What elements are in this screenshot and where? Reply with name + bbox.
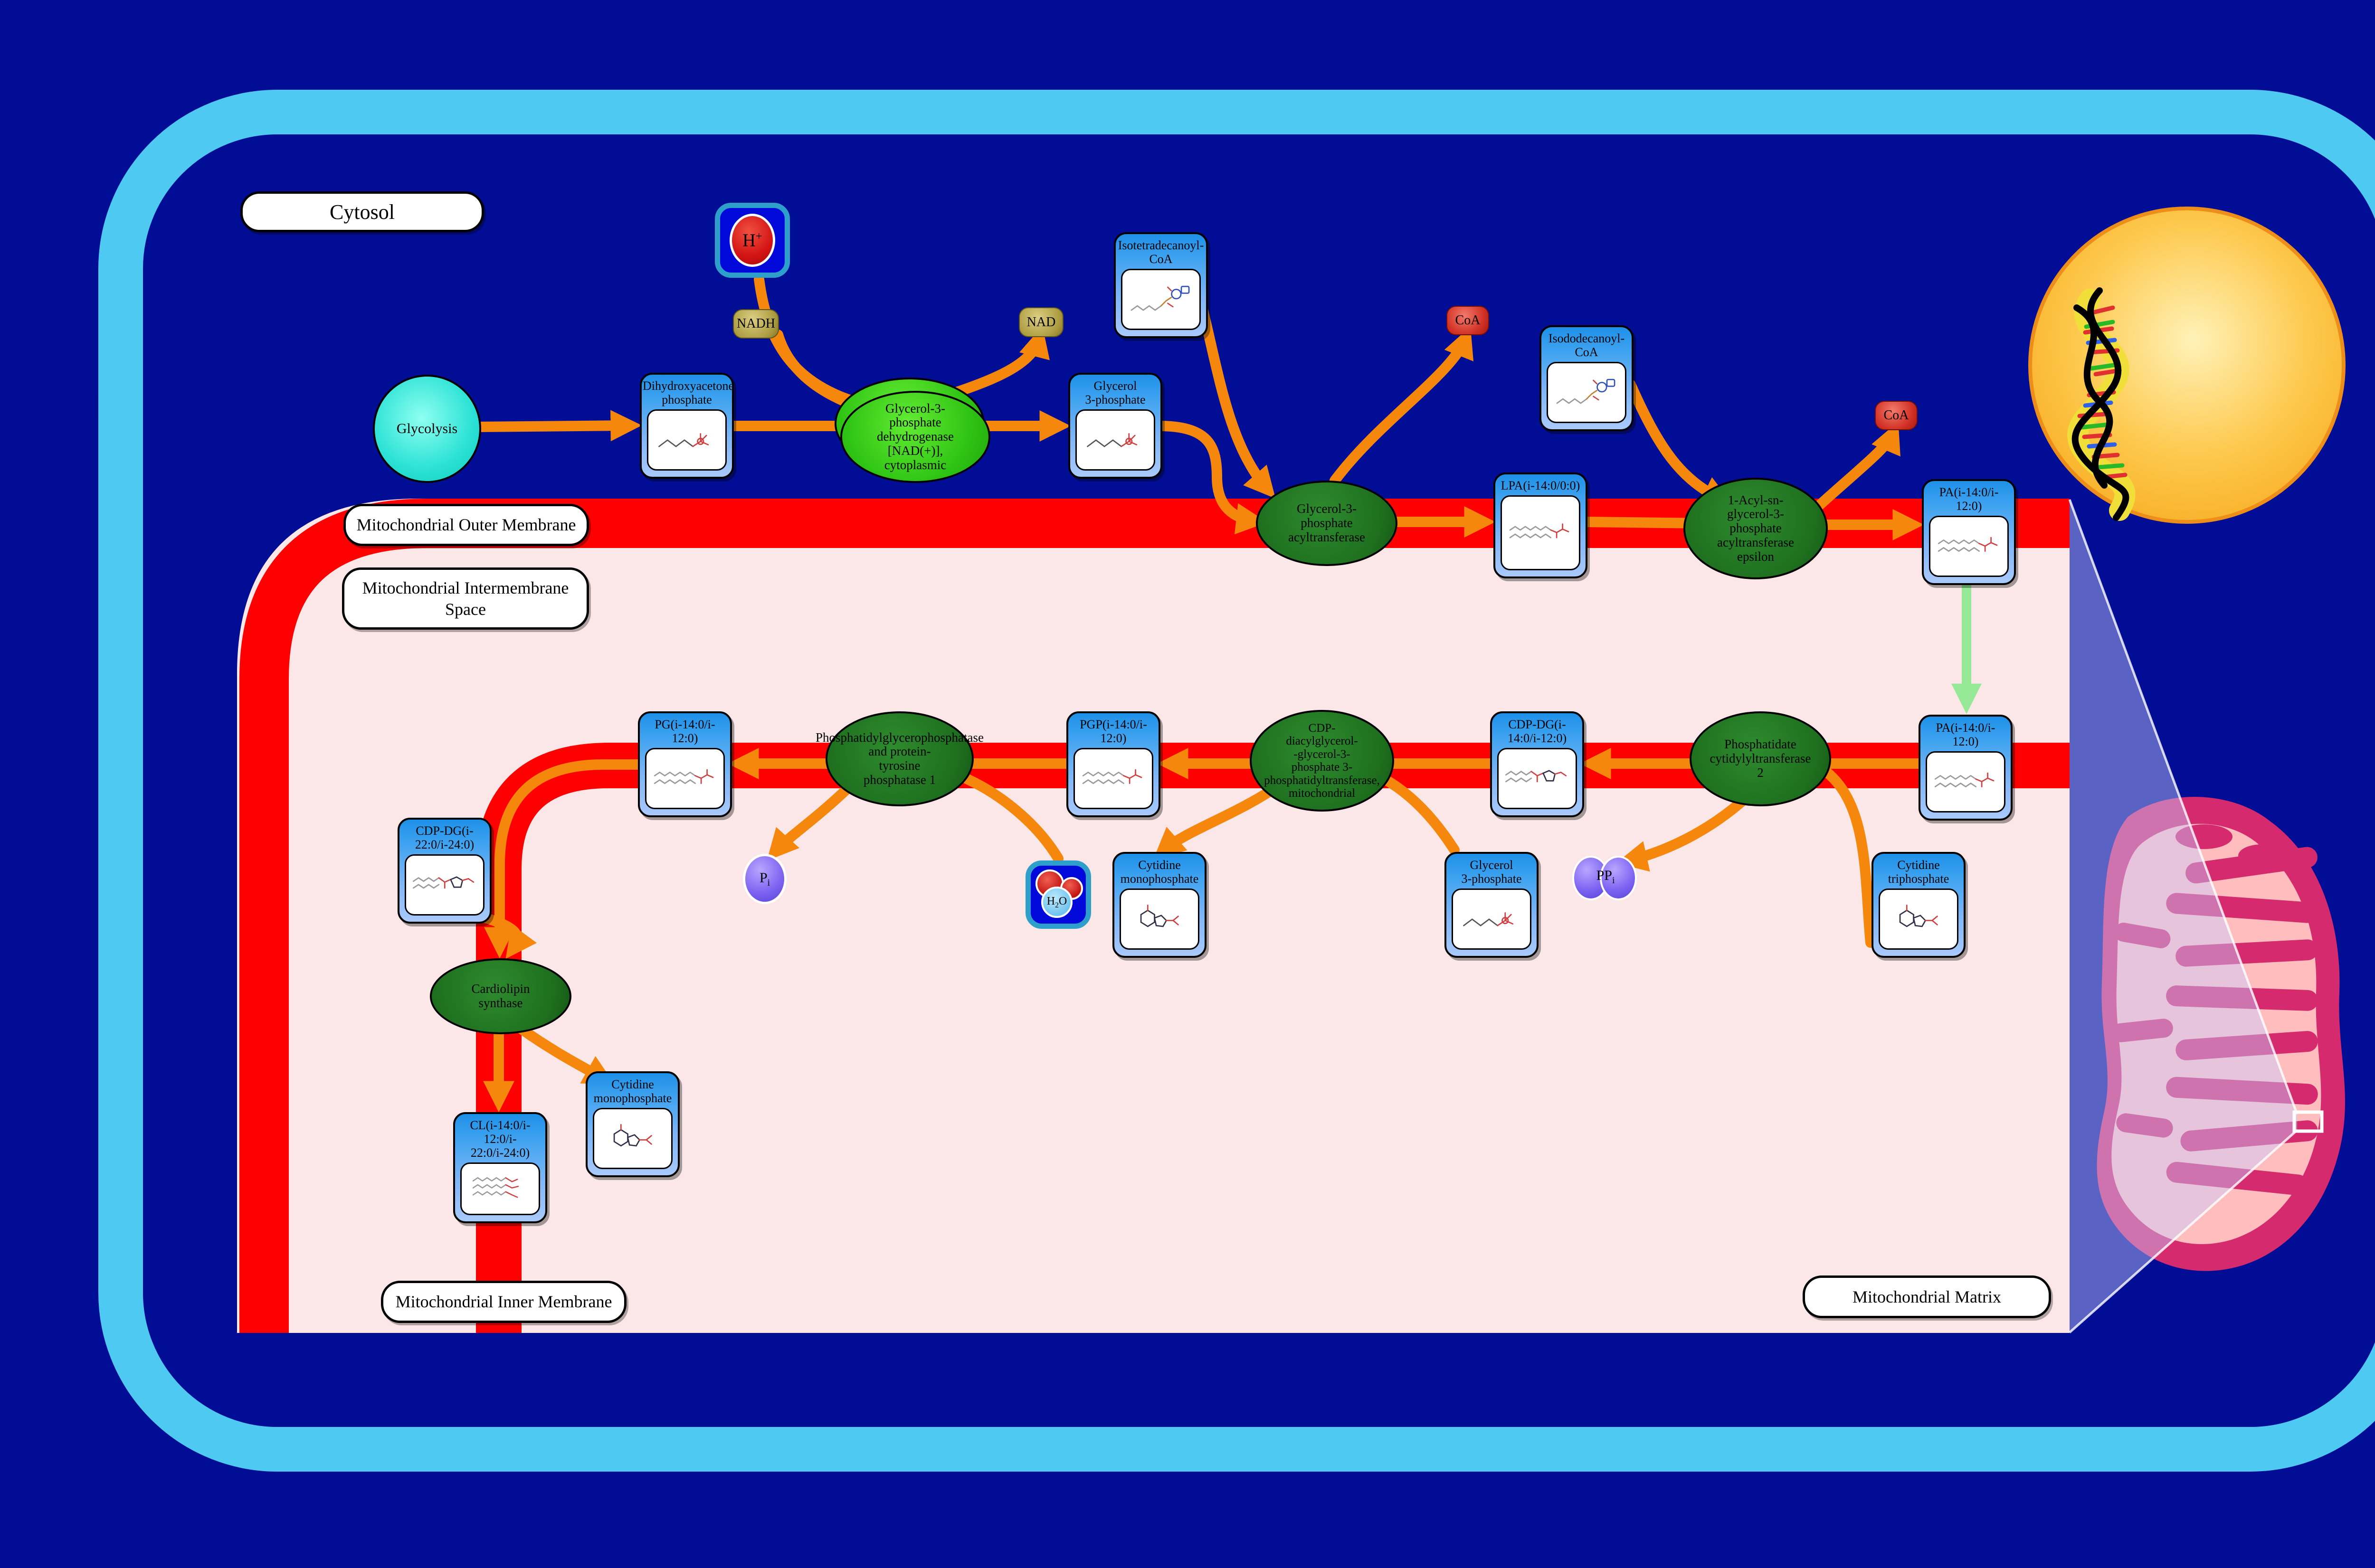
metabolite-title: PGP(i-14:0/i- 12:0) — [1068, 713, 1159, 746]
label-matrix: Mitochondrial Matrix — [1803, 1275, 2051, 1318]
enzyme-pgs1[interactable]: CDP- diacylglycerol- -glycerol-3- phosph… — [1250, 710, 1394, 812]
structure-drawing — [405, 854, 484, 916]
metabolite-title: PG(i-14:0/i- 12:0) — [640, 713, 730, 746]
metabolite-node-ctp[interactable]: Cytidine triphosphate — [1871, 852, 1966, 958]
metabolite-node-cmp-matrix[interactable]: Cytidine monophosphate — [1112, 852, 1206, 958]
metabolite-title: CDP-DG(i- 14:0/i-12:0) — [1492, 713, 1582, 746]
cofactor-h-plus[interactable]: H+ — [715, 203, 790, 278]
metabolite-node-cardiolipin[interactable]: CL(i-14:0/i- 12:0/i- 22:0/i-24:0) — [453, 1112, 547, 1223]
enzyme-ptpmt1[interactable]: Phosphatidylglycerophosphatase and prote… — [826, 711, 974, 806]
pathway-diagram: Cytosol Mitochondrial Outer Membrane Mit… — [0, 0, 2375, 1568]
structure-drawing — [1073, 748, 1153, 809]
pathway-node-glycolysis[interactable]: Glycolysis — [373, 375, 481, 483]
metabolite-title: PA(i-14:0/i- 12:0) — [1924, 481, 2014, 514]
label-outer-membrane: Mitochondrial Outer Membrane — [343, 504, 589, 546]
metabolite-title: Isotetradecanoyl- CoA — [1116, 234, 1206, 267]
structure-drawing — [1879, 888, 1958, 950]
metabolite-node-lpa[interactable]: LPA(i-14:0/0:0) — [1493, 472, 1587, 578]
metabolite-title: Cytidine triphosphate — [1873, 854, 1964, 887]
enzyme-label: Glycerol-3- phosphate acyltransferase — [1288, 502, 1365, 544]
structure-drawing — [1452, 888, 1531, 950]
enzyme-label: Phosphatidylglycerophosphatase and prote… — [816, 731, 984, 787]
enzyme-label: Glycerol-3- phosphate dehydrogenase [NAD… — [877, 402, 954, 472]
metabolite-node-g3p-matrix[interactable]: Glycerol 3-phosphate — [1444, 852, 1539, 958]
metabolite-title: CDP-DG(i- 22:0/i-24:0) — [399, 820, 490, 852]
cofactor-coa-top[interactable]: CoA — [1446, 306, 1489, 335]
metabolite-node-g3p-cytosol[interactable]: Glycerol 3-phosphate — [1068, 373, 1162, 479]
cofactor-label: NADH — [737, 316, 775, 331]
label-text: Mitochondrial Intermembrane Space — [362, 577, 569, 620]
metabolite-title: Cytidine monophosphate — [1114, 854, 1205, 887]
cofactor-label: CoA — [1455, 313, 1481, 328]
cofactor-nad[interactable]: NAD — [1019, 307, 1064, 337]
structure-drawing — [645, 748, 725, 809]
cofactor-nadh[interactable]: NADH — [733, 309, 779, 339]
label-text: Mitochondrial Matrix — [1852, 1286, 2001, 1308]
structure-drawing — [593, 1108, 673, 1169]
cofactor-h2o[interactable]: H2O — [1026, 860, 1091, 929]
metabolite-node-cdp-dg-22-24[interactable]: CDP-DG(i- 22:0/i-24:0) — [398, 818, 492, 924]
node-label: Glycolysis — [397, 421, 457, 437]
structure-drawing — [647, 409, 727, 471]
cofactor-label: CoA — [1884, 408, 1909, 423]
cofactor-coa-right[interactable]: CoA — [1875, 401, 1918, 430]
metabolite-node-isotetradecanoyl-coa[interactable]: Isotetradecanoyl- CoA — [1114, 232, 1208, 338]
water-molecule: H2O — [1041, 887, 1073, 918]
structure-drawing — [1120, 888, 1199, 950]
enzyme-agpat-epsilon[interactable]: 1-Acyl-sn- glycerol-3- phosphate acyltra… — [1683, 478, 1828, 579]
cofactor-ppi[interactable]: PPi — [1572, 855, 1639, 898]
metabolite-node-cdp-dg-14-12[interactable]: CDP-DG(i- 14:0/i-12:0) — [1490, 711, 1584, 817]
enzyme-label: 1-Acyl-sn- glycerol-3- phosphate acyltra… — [1717, 493, 1794, 564]
metabolite-title: Isododecanoyl- CoA — [1541, 327, 1632, 360]
metabolite-node-dhap[interactable]: Dihydroxyacetone phosphate — [640, 373, 734, 479]
enzyme-pcyt2[interactable]: Phosphatidate cytidylyltransferase 2 — [1690, 711, 1831, 806]
label-inner-membrane: Mitochondrial Inner Membrane — [381, 1281, 627, 1323]
cofactor-pi[interactable]: Pi — [743, 854, 787, 904]
metabolite-title: Glycerol 3-phosphate — [1070, 375, 1160, 407]
metabolite-node-pa-inner[interactable]: PA(i-14:0/i- 12:0) — [1919, 715, 2013, 821]
metabolite-title: Cytidine monophosphate — [588, 1073, 678, 1106]
metabolite-title: PA(i-14:0/i- 12:0) — [1920, 717, 2011, 749]
nucleus-icon — [2030, 208, 2344, 522]
metabolite-node-isododecanoyl-coa[interactable]: Isododecanoyl- CoA — [1539, 325, 1634, 431]
structure-drawing — [460, 1162, 540, 1215]
structure-drawing — [1926, 751, 2005, 812]
structure-drawing — [1497, 748, 1577, 809]
label-text: Cytosol — [330, 199, 395, 225]
structure-drawing — [1547, 362, 1626, 423]
structure-drawing — [1121, 269, 1201, 330]
metabolite-node-pa-outer[interactable]: PA(i-14:0/i- 12:0) — [1922, 479, 2016, 585]
label-text: Mitochondrial Inner Membrane — [396, 1291, 612, 1313]
structure-drawing — [1501, 495, 1580, 570]
enzyme-label: Phosphatidate cytidylyltransferase 2 — [1710, 737, 1811, 780]
h-plus-ellipse: H+ — [730, 214, 775, 267]
cofactor-label: NAD — [1027, 315, 1056, 330]
structure-drawing — [1075, 409, 1155, 471]
enzyme-label: Cardiolipin synthase — [472, 982, 530, 1010]
label-intermembrane-space: Mitochondrial Intermembrane Space — [342, 567, 589, 630]
metabolite-node-pg[interactable]: PG(i-14:0/i- 12:0) — [638, 711, 732, 817]
enzyme-gpd1[interactable]: Glycerol-3- phosphate dehydrogenase [NAD… — [835, 378, 992, 481]
enzyme-label: CDP- diacylglycerol- -glycerol-3- phosph… — [1264, 722, 1380, 800]
metabolite-node-cmp-inner[interactable]: Cytidine monophosphate — [586, 1071, 680, 1177]
metabolite-title: CL(i-14:0/i- 12:0/i- 22:0/i-24:0) — [455, 1114, 545, 1161]
metabolite-node-pgp[interactable]: PGP(i-14:0/i- 12:0) — [1066, 711, 1160, 817]
metabolite-title: Dihydroxyacetone phosphate — [642, 375, 732, 407]
structure-drawing — [1929, 516, 2009, 577]
metabolite-title: LPA(i-14:0/0:0) — [1495, 474, 1586, 493]
enzyme-cardiolipin-synthase[interactable]: Cardiolipin synthase — [430, 958, 571, 1034]
metabolite-title: Glycerol 3-phosphate — [1446, 854, 1537, 887]
label-text: Mitochondrial Outer Membrane — [357, 514, 576, 536]
label-cytosol: Cytosol — [240, 191, 484, 232]
enzyme-gpat[interactable]: Glycerol-3- phosphate acyltransferase — [1256, 481, 1397, 566]
